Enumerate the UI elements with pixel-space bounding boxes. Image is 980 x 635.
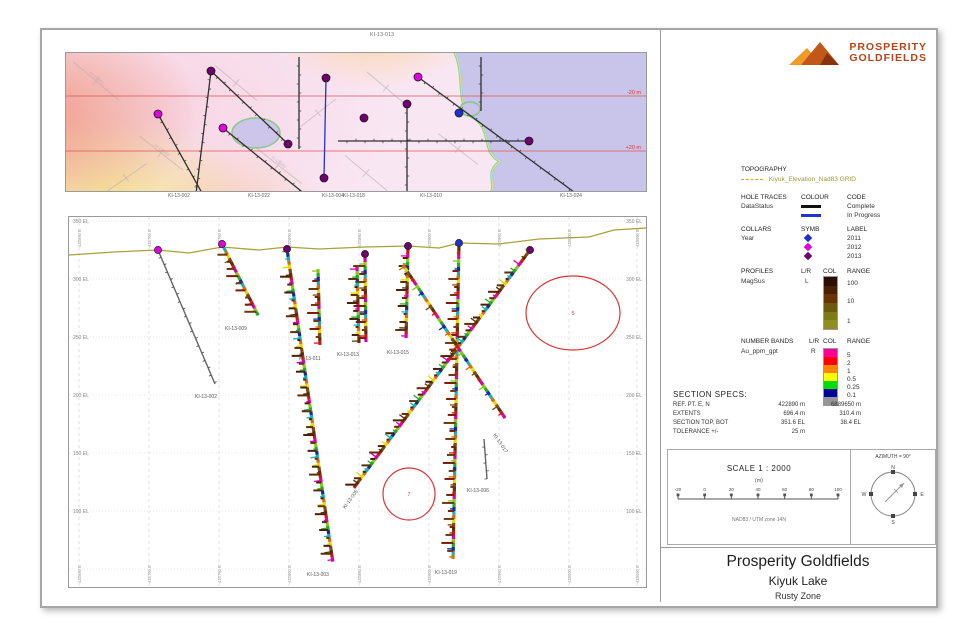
background-trace: [438, 134, 477, 165]
svg-text:422950 E: 422950 E: [497, 565, 502, 583]
collar-marker: [283, 245, 290, 252]
water-blob: [232, 118, 280, 148]
map-hole-label: KI-13-024: [560, 193, 582, 199]
compass-cardinal-marker: [891, 514, 895, 518]
plan-map-canvas: KI-12-001KI-12-003KI-12-005KI-12-009KI-1…: [66, 53, 646, 191]
svg-text:100 EL: 100 EL: [73, 509, 89, 515]
spec-cell: 25 m: [753, 428, 805, 437]
au-band-swatch: [824, 373, 837, 381]
background-trace: [367, 72, 405, 104]
map-top-hole-label: KI-13-013: [322, 32, 442, 38]
collar-marker: [525, 137, 533, 145]
magsus-color-ramp: [823, 276, 838, 330]
au-range-value: 1: [847, 368, 851, 375]
svg-text:20: 20: [729, 487, 735, 492]
svg-text:W: W: [862, 492, 867, 498]
svg-text:KI-13-006: KI-13-006: [467, 488, 489, 494]
scale-box: SCALE 1 : 2000 (m) -20020406080100 NAD83…: [667, 449, 851, 545]
trace-inprogress-sample: [801, 214, 821, 217]
magsus-ramp-step: [824, 312, 837, 321]
collar-marker: [526, 246, 533, 253]
svg-text:200 EL: 200 EL: [73, 393, 89, 399]
au-range-value: 5: [847, 352, 851, 359]
svg-text:KI-13-017: KI-13-017: [491, 433, 508, 455]
background-trace: [300, 99, 335, 127]
scale-tick-marker: [837, 494, 840, 497]
magsus-ramp-step: [824, 286, 837, 295]
svg-text:80: 80: [809, 487, 815, 492]
collar-marker: [404, 242, 411, 249]
map-hole-label: KI-13-002: [168, 193, 190, 199]
svg-text:300 EL: 300 EL: [626, 277, 642, 283]
spec-cell: 6889650 m: [805, 401, 861, 410]
topography-label: Kiyuk_Elevation_Nad83 GRID: [769, 176, 856, 183]
magsus-range-1: 1: [847, 318, 851, 325]
svg-text:KI-13-003: KI-13-003: [307, 572, 329, 578]
spec-cell: 696.4 m: [753, 410, 805, 419]
map-layers: KI-12-001KI-12-003KI-12-005KI-12-009KI-1…: [66, 53, 646, 191]
drill-trace: [297, 57, 301, 149]
svg-text:40: 40: [755, 487, 761, 492]
collar-marker: [455, 239, 462, 246]
spec-cell: REF. PT. E, N: [673, 401, 753, 410]
svg-text:200 EL: 200 EL: [626, 393, 642, 399]
logo-line2: GOLDFIELDS: [849, 53, 927, 64]
svg-text:7: 7: [407, 492, 410, 498]
svg-text:KI-13-019: KI-13-019: [435, 570, 457, 576]
target-annotation: 7: [383, 468, 435, 520]
drill-trace: [405, 104, 409, 191]
svg-text:150 EL: 150 EL: [626, 451, 642, 457]
collar-marker: [218, 240, 225, 247]
magsus-ramp-step: [824, 294, 837, 303]
drill-trace: [324, 78, 326, 178]
collar-row-2011: Year 2011: [741, 235, 754, 242]
page: KI-13-013 KI-12-001KI-12-003KI-12-005KI-…: [0, 0, 980, 635]
scale-bar: -20020406080100: [668, 484, 848, 510]
spec-cell: 422890 m: [753, 401, 805, 410]
legend-topography-title: TOPOGRAPHY: [741, 166, 787, 173]
scale-tick-marker: [810, 494, 813, 497]
number-bands-name-row: Au_ppm_gpt R: [741, 348, 778, 355]
legend: TOPOGRAPHY Kiyuk_Elevation_Nad83 GRID HO…: [741, 160, 931, 390]
collar-marker: [219, 124, 227, 132]
svg-text:150 EL: 150 EL: [73, 451, 89, 457]
scale-datum: NAD83 / UTM zone 14N: [668, 517, 850, 523]
svg-text:423050 E: 423050 E: [635, 565, 640, 583]
collar-marker: [361, 250, 368, 257]
cross-section-panel: 350 EL350 EL300 EL300 EL250 EL250 EL200 …: [68, 216, 647, 588]
collar-2011-symbol: [804, 234, 812, 242]
drill-hole: KI-13-002: [154, 246, 217, 400]
spec-cell: TOLERANCE +/-: [673, 428, 753, 437]
title-block: Prosperity Goldfields Kiyuk Lake Rusty Z…: [660, 547, 936, 603]
section-specs-rows: REF. PT. E, N422890 m6889650 mEXTENTS696…: [673, 401, 903, 437]
magsus-ramp-step: [824, 277, 837, 286]
spec-cell: 310.4 m: [805, 410, 861, 419]
magsus-ramp-step: [824, 320, 837, 329]
au-band-swatch: [824, 349, 837, 357]
svg-text:0: 0: [703, 487, 706, 492]
background-trace: KI-12-005: [254, 147, 301, 184]
background-trace: [106, 164, 147, 191]
svg-text:422900 E: 422900 E: [427, 229, 432, 247]
drill-trace: [195, 71, 211, 191]
cross-section-canvas: 350 EL350 EL300 EL300 EL250 EL250 EL200 …: [69, 217, 646, 587]
topography-line-sample: [741, 179, 763, 180]
spec-cell: [805, 428, 861, 437]
drill-hole: KI-13-006: [467, 439, 489, 494]
hole-trace-row-complete: DataStatus Complete: [741, 203, 773, 210]
collar-marker: [320, 174, 328, 182]
compass-cardinal-marker: [869, 492, 873, 496]
drill-hole: KI-13-013: [337, 267, 359, 358]
svg-text:350 EL: 350 EL: [73, 219, 89, 225]
svg-text:300 EL: 300 EL: [73, 277, 89, 283]
svg-text:422850 E: 422850 E: [357, 565, 362, 583]
map-hole-label: KI-13-018: [343, 193, 365, 199]
svg-text:350 EL: 350 EL: [626, 219, 642, 225]
plan-map-panel: KI-12-001KI-12-003KI-12-005KI-12-009KI-1…: [65, 52, 647, 192]
svg-text:422750 E: 422750 E: [217, 565, 222, 583]
section-layers: 350 EL350 EL300 EL300 EL250 EL250 EL200 …: [69, 217, 646, 587]
collar-marker: [284, 140, 292, 148]
svg-text:422800 E: 422800 E: [287, 565, 292, 583]
trace-complete-sample: [801, 205, 821, 208]
svg-text:KI-13-015: KI-13-015: [387, 350, 409, 356]
collar-marker: [403, 100, 411, 108]
background-trace: KI-12-003: [139, 136, 182, 170]
svg-text:KI-13-005: KI-13-005: [342, 489, 360, 510]
spec-cell: 351.6 EL: [753, 419, 805, 428]
title-section: Rusty Zone: [660, 591, 936, 601]
collar-marker: [154, 246, 161, 253]
background-trace: KI-12-001: [73, 62, 119, 101]
drill-hole: KI-13-003: [280, 245, 333, 578]
spec-cell: EXTENTS: [673, 410, 753, 419]
svg-text:250 EL: 250 EL: [626, 335, 642, 341]
svg-text:422650 E: 422650 E: [77, 229, 82, 247]
target-annotation: 5: [526, 276, 620, 350]
spec-cell: 38.4 EL: [805, 419, 861, 428]
compass-box: AZIMUTH = 90° NSWE: [850, 449, 936, 545]
au-band-swatch: [824, 381, 837, 389]
svg-text:100: 100: [834, 487, 842, 492]
compass-icon: NSWE: [851, 460, 935, 534]
svg-text:5: 5: [571, 311, 574, 317]
scale-tick-marker: [757, 494, 760, 497]
collar-2013-symbol: [804, 252, 812, 260]
scale-tick-marker: [703, 494, 706, 497]
svg-text:422900 E: 422900 E: [427, 565, 432, 583]
svg-text:E: E: [920, 492, 924, 498]
svg-text:250 EL: 250 EL: [73, 335, 89, 341]
au-range-value: 0.5: [847, 376, 856, 383]
svg-text:-20 m: -20 m: [627, 90, 641, 96]
map-hole-label: KI-13-022: [248, 193, 270, 199]
svg-text:422850 E: 422850 E: [357, 229, 362, 247]
spec-cell: SECTION TOP, BOT: [673, 419, 753, 428]
scale-label: SCALE 1 : 2000: [668, 464, 850, 473]
svg-text:422700 E: 422700 E: [147, 565, 152, 583]
svg-text:60: 60: [782, 487, 788, 492]
scale-tick-marker: [677, 494, 680, 497]
drill-hole: KI-13-015: [387, 242, 412, 356]
collar-marker: [414, 73, 422, 81]
svg-text:422650 E: 422650 E: [77, 565, 82, 583]
drill-hole: [353, 250, 368, 342]
svg-text:423000 E: 423000 E: [567, 565, 572, 583]
legend-number-bands-header: NUMBER BANDS L/R COL RANGE: [741, 338, 793, 345]
collar-marker: [455, 109, 463, 117]
au-band-swatch: [824, 357, 837, 365]
collar-marker: [322, 74, 330, 82]
svg-text:422700 E: 422700 E: [147, 229, 152, 247]
svg-text:KI-13-011: KI-13-011: [299, 356, 321, 362]
svg-text:+20 m: +20 m: [626, 145, 642, 151]
legend-hole-traces-header: HOLE TRACES COLOUR CODE: [741, 194, 787, 201]
title-company: Prosperity Goldfields: [660, 553, 936, 571]
legend-collars-header: COLLARS SYMB LABEL: [741, 226, 771, 233]
svg-text:422800 E: 422800 E: [287, 229, 292, 247]
collar-marker: [360, 114, 368, 122]
map-hole-label: KI-13-004: [322, 193, 344, 199]
au-range-value: 2: [847, 360, 851, 367]
title-project: Kiyuk Lake: [660, 574, 936, 588]
drill-hole: KI-13-009: [217, 240, 258, 332]
svg-text:KI-12-003: KI-12-003: [153, 142, 171, 157]
background-trace: [345, 155, 387, 190]
svg-text:-20: -20: [675, 487, 682, 492]
magsus-range-10: 10: [847, 298, 854, 305]
collar-marker: [154, 110, 162, 118]
profiles-name-row: MagSus L: [741, 278, 765, 285]
svg-text:KI-13-009: KI-13-009: [225, 326, 247, 332]
company-logo: PROSPERITY GOLDFIELDS: [787, 40, 927, 66]
logo-mountains-icon: [787, 40, 845, 66]
magsus-range-100: 100: [847, 280, 858, 287]
svg-text:N: N: [891, 465, 895, 471]
logo-text: PROSPERITY GOLDFIELDS: [849, 42, 927, 64]
drill-hole: KI-13-005: [342, 246, 534, 510]
magsus-ramp-step: [824, 303, 837, 312]
au-band-swatch: [824, 365, 837, 373]
svg-text:KI-12-005: KI-12-005: [270, 154, 288, 169]
svg-text:S: S: [891, 520, 895, 526]
svg-text:KI-12-001: KI-12-001: [89, 70, 106, 86]
map-hole-label: KI-13-010: [420, 193, 442, 199]
scale-tick-marker: [730, 494, 733, 497]
svg-text:KI-13-013: KI-13-013: [337, 352, 359, 358]
collar-marker: [207, 67, 215, 75]
legend-profiles-header: PROFILES L/R COL RANGE: [741, 268, 773, 275]
section-specs-title: SECTION SPECS:: [673, 390, 903, 399]
scale-tick-marker: [783, 494, 786, 497]
plot-sheet: KI-13-013 KI-12-001KI-12-003KI-12-005KI-…: [40, 28, 938, 608]
collar-2012-symbol: [804, 243, 812, 251]
svg-text:423050 E: 423050 E: [635, 229, 640, 247]
drill-hole: KI-13-019: [435, 239, 463, 576]
section-specs: SECTION SPECS: REF. PT. E, N422890 m6889…: [673, 390, 903, 437]
svg-text:100 EL: 100 EL: [626, 509, 642, 515]
legend-topography-row: Kiyuk_Elevation_Nad83 GRID: [741, 176, 856, 183]
compass-cardinal-marker: [913, 492, 917, 496]
svg-text:KI-13-002: KI-13-002: [195, 394, 217, 400]
